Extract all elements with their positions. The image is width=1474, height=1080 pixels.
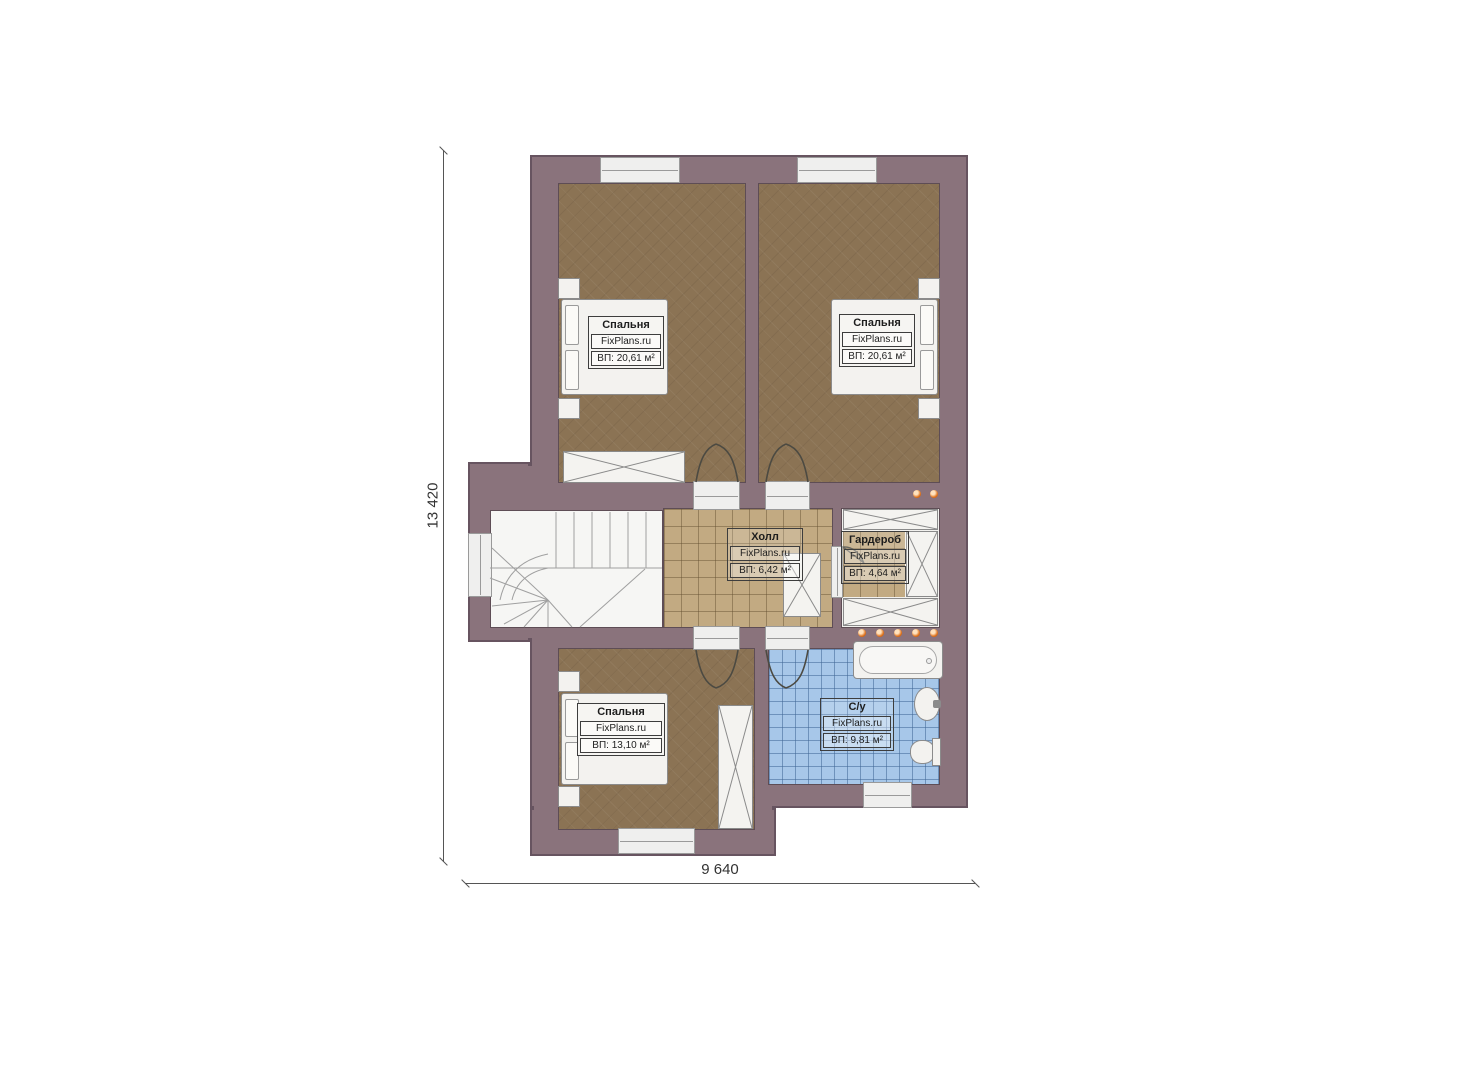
door-opening-icon — [693, 481, 740, 510]
spotlight-icon — [876, 629, 884, 637]
window-icon — [863, 782, 912, 808]
wardrobe-unit-icon — [843, 598, 938, 626]
floor-plan-canvas: Спальня FixPlans.ru ВП: 20,61 м² Спальня… — [0, 0, 1474, 1080]
room-area: ВП: 6,42 м² — [730, 563, 800, 578]
room-name: Спальня — [580, 706, 662, 719]
nightstand — [918, 398, 940, 419]
nightstand — [558, 786, 580, 807]
door-opening-icon — [693, 626, 740, 650]
spotlight-icon — [912, 629, 920, 637]
dimension-width-label: 9 640 — [670, 861, 770, 878]
staircase-floor — [490, 510, 663, 628]
spotlight-icon — [930, 629, 938, 637]
room-name: Спальня — [591, 319, 661, 332]
watermark-text: FixPlans.ru — [823, 716, 891, 731]
dimension-height-label: 13 420 — [425, 474, 442, 538]
watermark-text: FixPlans.ru — [842, 332, 912, 347]
door-opening-icon — [765, 626, 810, 650]
watermark-text: FixPlans.ru — [730, 546, 800, 561]
closet-icon — [718, 705, 753, 829]
room-name: Спальня — [842, 317, 912, 330]
wardrobe-unit-icon — [843, 509, 938, 530]
bathtub-icon — [853, 641, 943, 679]
dimension-line-vertical — [443, 150, 444, 862]
window-icon — [468, 533, 492, 597]
wardrobe-unit-icon — [906, 531, 938, 597]
room-label-bathroom: С/у FixPlans.ru ВП: 9,81 м² — [820, 698, 894, 751]
nightstand — [558, 671, 580, 692]
window-icon — [797, 157, 877, 183]
room-area: ВП: 13,10 м² — [580, 738, 662, 753]
nightstand — [558, 278, 580, 299]
room-area: ВП: 20,61 м² — [591, 351, 661, 366]
nightstand — [918, 278, 940, 299]
room-name: С/у — [823, 701, 891, 714]
spotlight-icon — [858, 629, 866, 637]
room-area: ВП: 9,81 м² — [823, 733, 891, 748]
room-label-bedroom-top-right: Спальня FixPlans.ru ВП: 20,61 м² — [839, 314, 915, 367]
window-icon — [618, 828, 695, 854]
room-name: Гардероб — [844, 534, 906, 547]
room-label-wardrobe: Гардероб FixPlans.ru ВП: 4,64 м² — [841, 531, 909, 584]
room-area: ВП: 4,64 м² — [844, 566, 906, 581]
room-label-bedroom-bottom: Спальня FixPlans.ru ВП: 13,10 м² — [577, 703, 665, 756]
spotlight-icon — [894, 629, 902, 637]
watermark-text: FixPlans.ru — [591, 334, 661, 349]
door-opening-icon — [765, 481, 810, 510]
nightstand — [558, 398, 580, 419]
toilet-tank-icon — [932, 738, 941, 766]
watermark-text: FixPlans.ru — [844, 549, 906, 564]
room-label-bedroom-top-left: Спальня FixPlans.ru ВП: 20,61 м² — [588, 316, 664, 369]
spotlight-icon — [930, 490, 938, 498]
dimension-line-horizontal — [465, 883, 975, 884]
watermark-text: FixPlans.ru — [580, 721, 662, 736]
window-icon — [600, 157, 680, 183]
room-area: ВП: 20,61 м² — [842, 349, 912, 364]
room-label-hall: Холл FixPlans.ru ВП: 6,42 м² — [727, 528, 803, 581]
room-name: Холл — [730, 531, 800, 544]
closet-icon — [563, 451, 685, 483]
spotlight-icon — [913, 490, 921, 498]
faucet-icon — [933, 700, 941, 708]
